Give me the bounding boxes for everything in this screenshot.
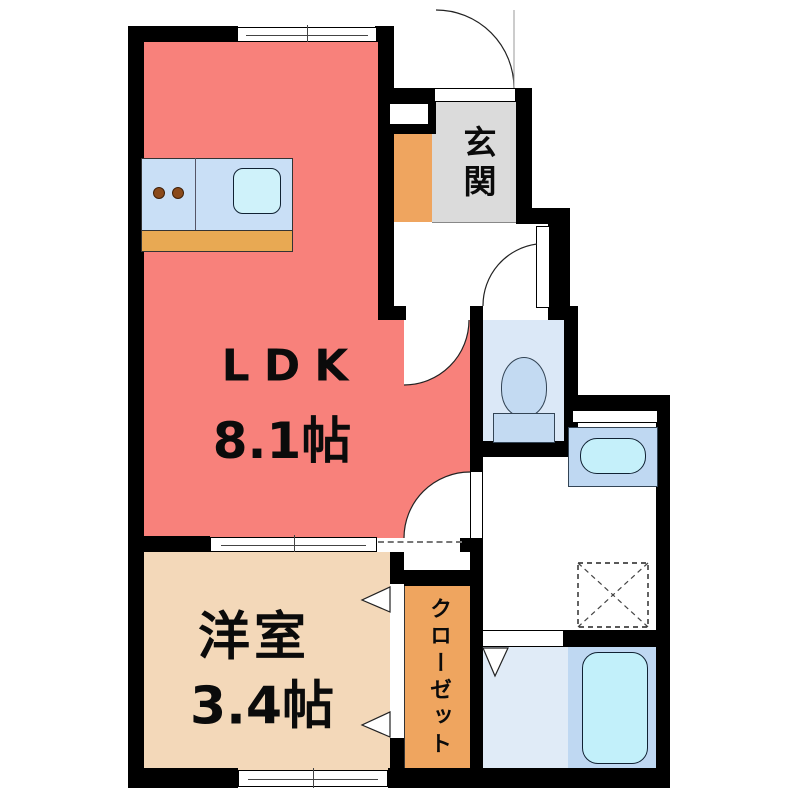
- entrance-door-arc: [436, 10, 514, 88]
- ldk-size-label: 8.1帖: [213, 401, 352, 473]
- door-arcs-layer: [0, 0, 800, 800]
- closet-fold-marker-bottom: [362, 712, 390, 737]
- bath-folding-door-icon: [483, 648, 508, 676]
- entrance-label: 玄関: [453, 125, 501, 203]
- floor-plan: LDK 8.1帖 洋室 3.4帖 玄関 クローゼット: [0, 0, 800, 800]
- closet-label: クローゼット: [422, 597, 454, 759]
- washing-machine-space-icon: [578, 563, 648, 627]
- toilet-door-arc: [483, 244, 537, 306]
- closet-fold-marker-top: [362, 587, 390, 612]
- ldk-label: LDK: [222, 341, 363, 392]
- ldk-lower-door-arc: [404, 472, 470, 538]
- western-room-label: 洋室: [198, 595, 310, 670]
- ldk-upper-door-arc: [404, 320, 469, 385]
- western-room-size-label: 3.4帖: [190, 664, 334, 739]
